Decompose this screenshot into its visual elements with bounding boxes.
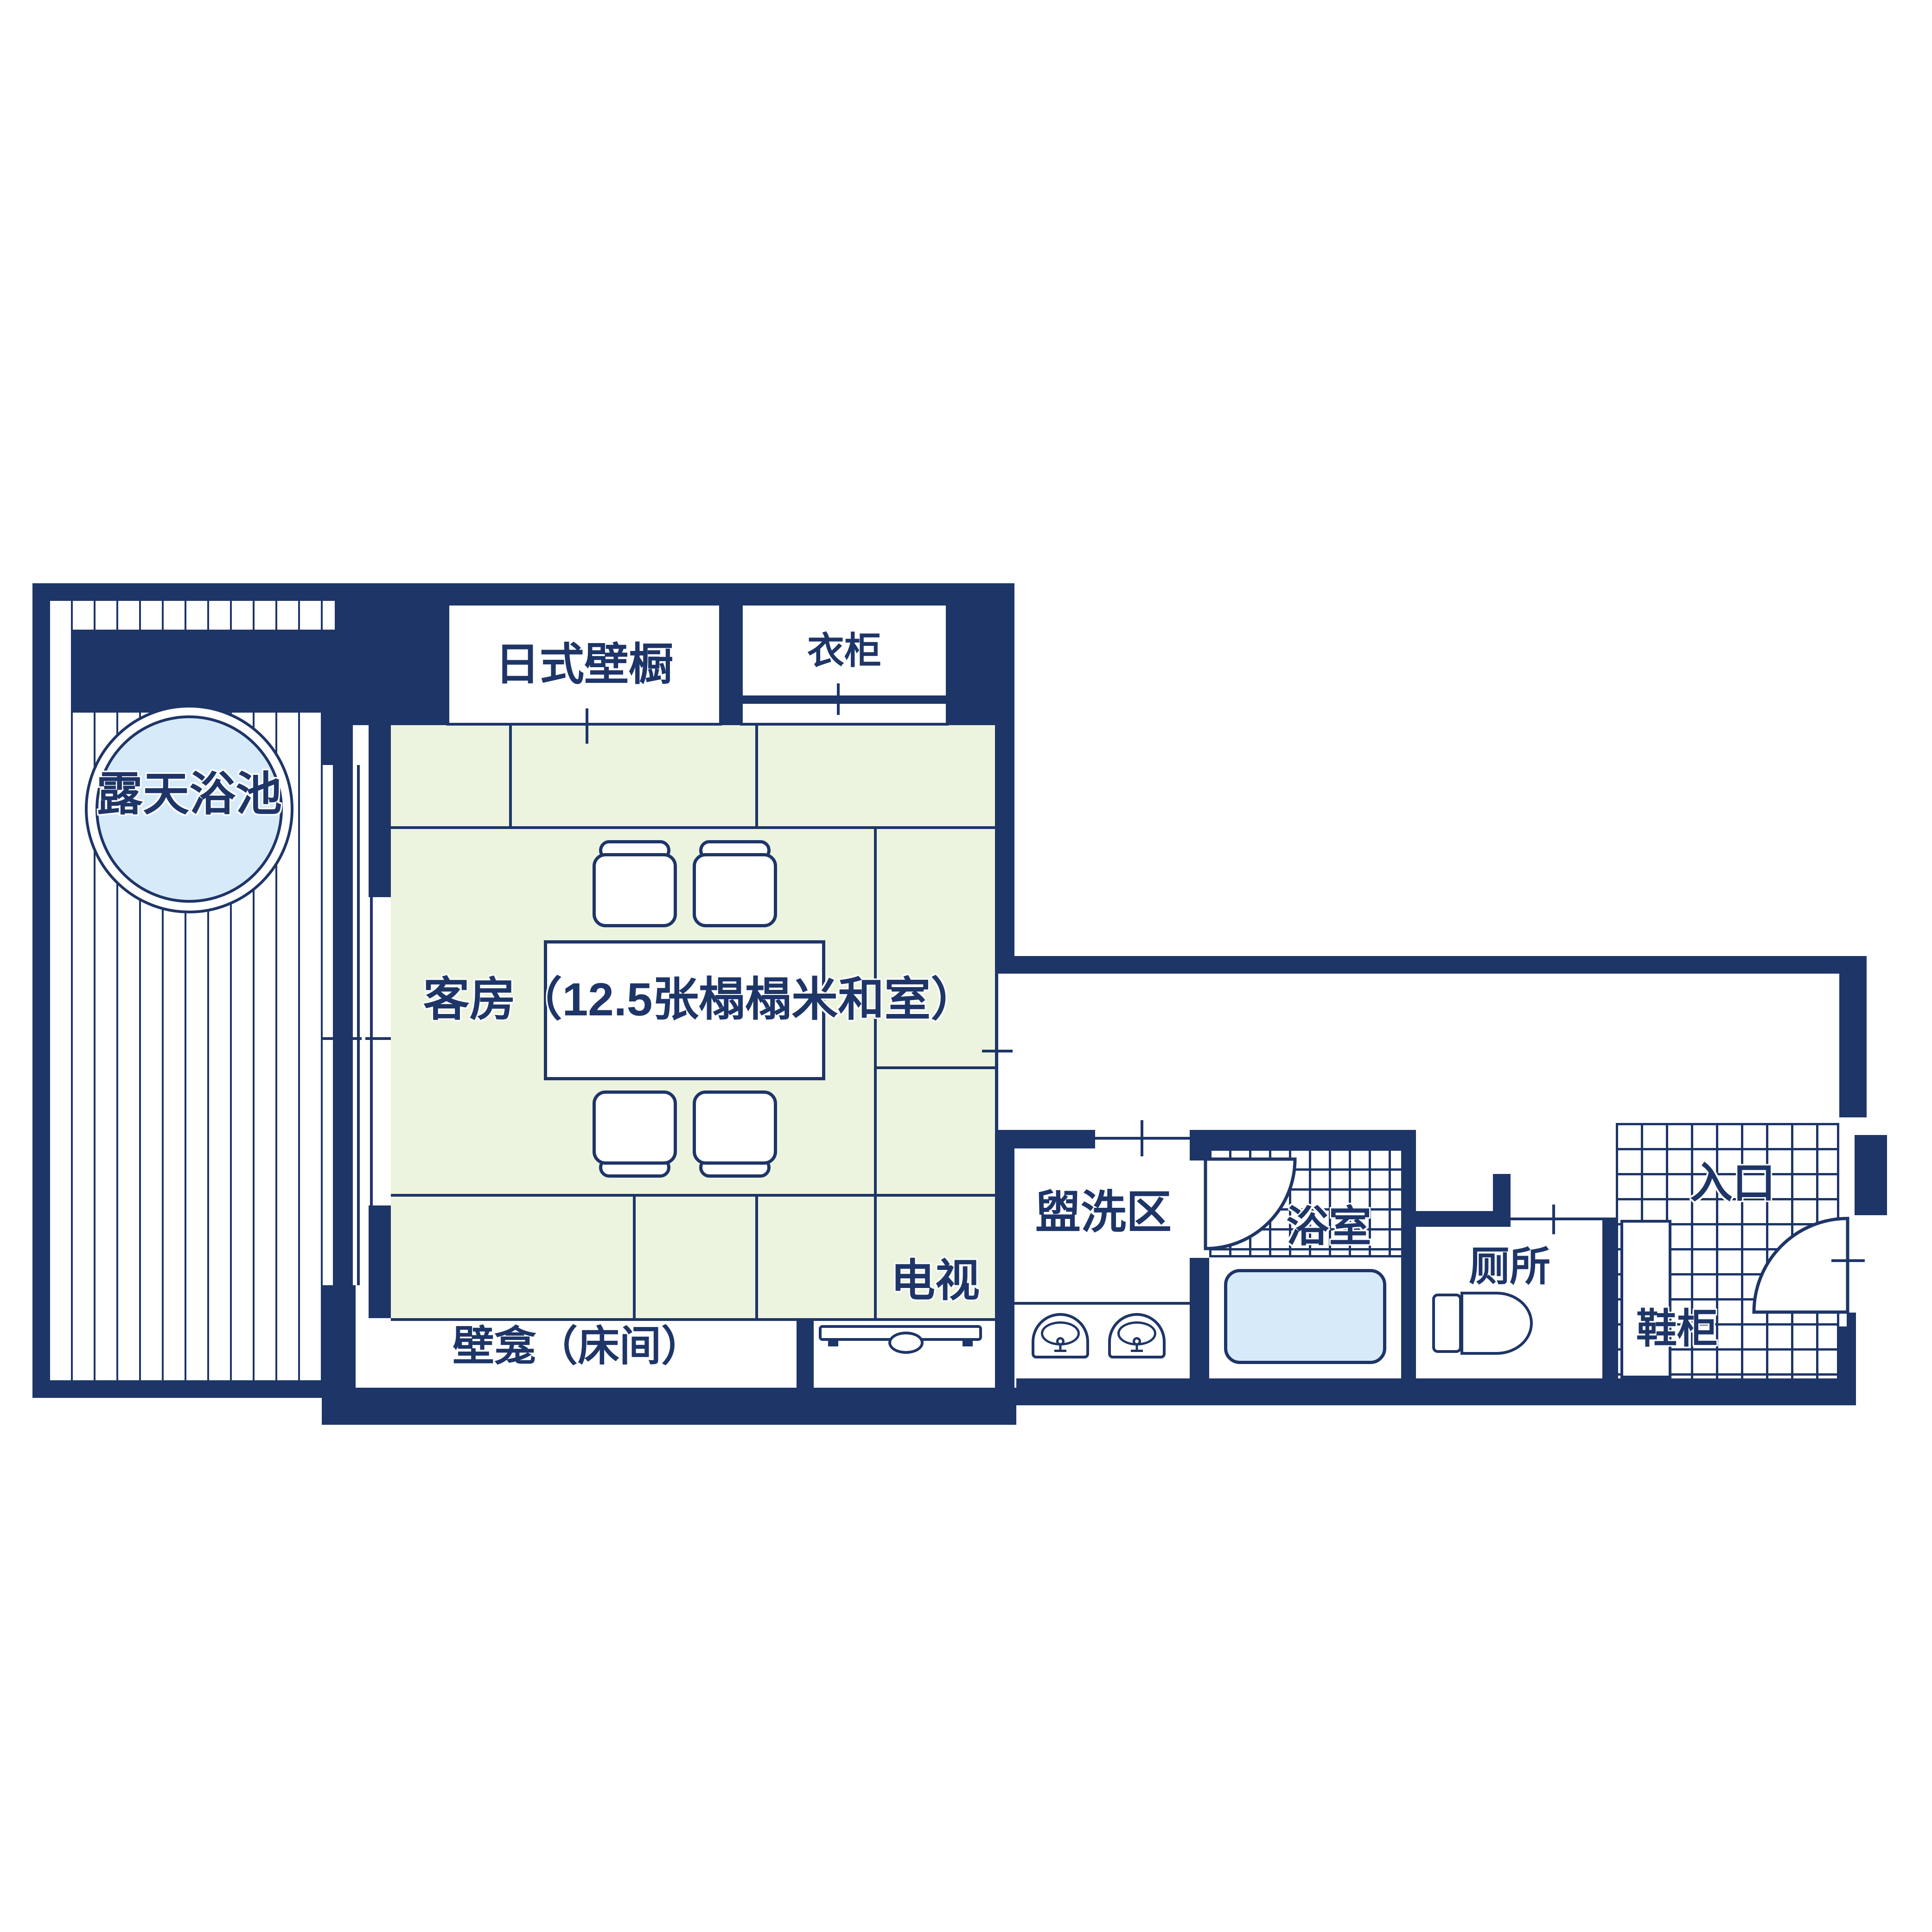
door-tick — [586, 708, 588, 744]
toilet-wall-stub — [1493, 1174, 1511, 1211]
toilet-icon — [1460, 1292, 1533, 1355]
shoe-cabinet-label: 鞋柜 — [1636, 1308, 1718, 1349]
bathtub-icon — [1224, 1269, 1386, 1364]
tatami-line — [633, 1197, 636, 1318]
bathroom-right-wall — [1401, 1148, 1416, 1378]
door-swing-icon — [1734, 1196, 1868, 1335]
window-line — [357, 765, 360, 1285]
sink-counter-line — [1014, 1302, 1190, 1305]
tatami-line — [391, 1194, 995, 1197]
tatami-line — [509, 725, 512, 826]
tatami-right-wall — [995, 583, 1014, 956]
wardrobe-label: 衣柜 — [807, 632, 881, 670]
tv-label: 电视 — [891, 1259, 980, 1303]
tatami-line — [874, 829, 877, 1318]
wardrobe-depth-strip — [740, 701, 949, 726]
japanese-closet-label: 日式壁橱 — [495, 643, 673, 687]
planter-wall — [71, 630, 321, 713]
tatami-left-wall — [369, 725, 391, 897]
door-tick — [1552, 1205, 1555, 1234]
faucet-base — [1054, 1350, 1066, 1352]
window-tick — [322, 1037, 362, 1040]
alcove-label: 壁龛（床间） — [453, 1326, 703, 1367]
bathroom-label: 浴室 — [1286, 1205, 1371, 1248]
washroom-label: 盥洗区 — [1035, 1189, 1172, 1235]
sink-icon — [1108, 1313, 1166, 1358]
shoe-cabinet-box — [1620, 1220, 1671, 1378]
tv-stand-base — [888, 1332, 924, 1354]
corner-wall-block — [1839, 974, 1867, 1117]
tatami-line — [755, 725, 758, 826]
faucet-base — [1131, 1350, 1143, 1352]
planter-wall-stub — [321, 630, 353, 765]
door-tick — [837, 683, 840, 715]
bathroom-left-wall — [1190, 1258, 1209, 1378]
hallway-top-wall — [995, 956, 1867, 974]
tatami-line — [755, 1197, 758, 1318]
open-air-bath-label: 露天浴池 — [96, 771, 282, 817]
tatami-line — [875, 1066, 995, 1069]
bottom-wall-central — [353, 1388, 1016, 1425]
door-tick — [1831, 1259, 1865, 1262]
toilet-top-wall — [1416, 1211, 1511, 1227]
alcove-divider-wall — [797, 1321, 814, 1388]
toilet-label: 厕所 — [1469, 1246, 1550, 1287]
floor-chair — [593, 1090, 677, 1165]
floor-plan: 露天浴池 日式壁橱 衣柜 客房（12.5张榻榻米和室） 壁龛（床间） 电视 — [0, 0, 1932, 1932]
floor-chair — [593, 853, 677, 927]
tatami-left-wall — [369, 1205, 391, 1318]
door-tick — [1141, 1120, 1143, 1156]
sliding-door-line — [370, 897, 373, 1205]
window-line — [333, 765, 336, 1285]
washroom-left-wall — [995, 1148, 1014, 1388]
floor-chair — [693, 1090, 777, 1165]
deck-corner-block — [322, 1285, 356, 1425]
entrance-label: 入口 — [1690, 1162, 1775, 1205]
bottom-wall-wing — [1016, 1378, 1856, 1405]
washroom-top-wall — [995, 1130, 1095, 1148]
toilet-tank — [1432, 1294, 1462, 1353]
tatami-line — [391, 826, 995, 829]
sink-icon — [1032, 1313, 1089, 1358]
guest-room-label: 客房（12.5张榻榻米和室） — [423, 976, 977, 1023]
door-tick — [982, 1050, 1013, 1052]
floor-chair — [693, 853, 777, 927]
washroom-door-line — [1095, 1137, 1192, 1140]
toilet-door-line — [1511, 1218, 1602, 1220]
